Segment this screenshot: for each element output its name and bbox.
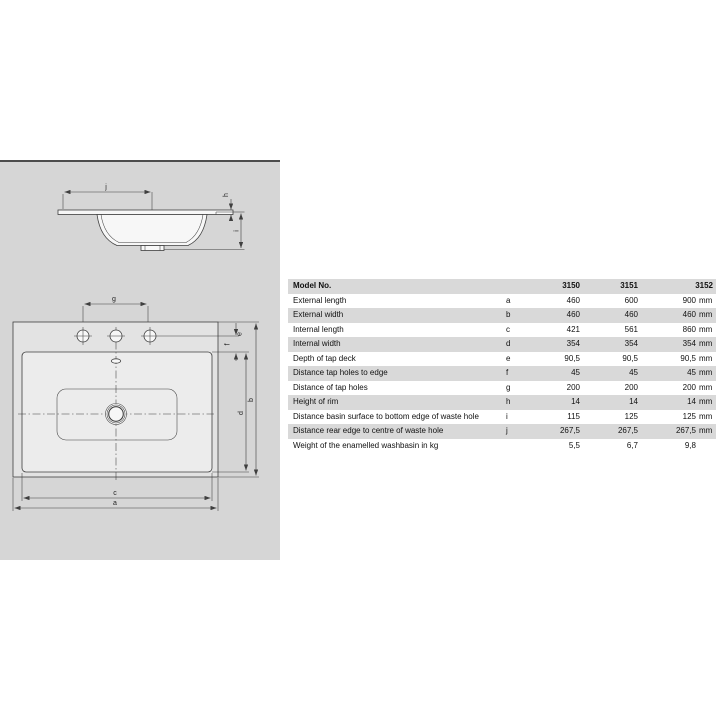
spec-value-3150: 460 <box>522 294 580 309</box>
spec-value-3151: 600 <box>580 294 638 309</box>
spec-value-3151: 14 <box>580 395 638 410</box>
dim-label-g: g <box>112 296 116 303</box>
spec-row-letter: i <box>506 410 522 425</box>
spec-row-letter: d <box>506 337 522 352</box>
dim-label-b: b <box>248 398 255 402</box>
spec-row-letter: c <box>506 323 522 338</box>
spec-row-label: External length <box>288 294 506 309</box>
spec-value-3151: 354 <box>580 337 638 352</box>
waste-fitting <box>141 246 164 251</box>
spec-row-unit: mm <box>696 337 716 352</box>
top-view-drawing: g <box>13 296 259 511</box>
spec-value-3152: 45 <box>638 366 696 381</box>
spec-value-3150: 460 <box>522 308 580 323</box>
side-view-drawing: j h <box>58 184 245 251</box>
spec-row-label: Distance rear edge to centre of waste ho… <box>288 424 506 439</box>
technical-drawing-svg: j h <box>0 162 280 560</box>
overflow-hole <box>111 359 120 363</box>
dim-label-d: d <box>238 411 245 415</box>
drawing-panel: j h <box>0 160 280 560</box>
dim-label-a: a <box>113 500 117 507</box>
spec-row-label: Internal length <box>288 323 506 338</box>
dim-label-j: j <box>104 184 107 191</box>
spec-value-3151: 45 <box>580 366 638 381</box>
spec-value-3150: 5,5 <box>522 439 580 454</box>
spec-row-unit: mm <box>696 424 716 439</box>
spec-value-3150: 267,5 <box>522 424 580 439</box>
table-row: External lengtha460600900mm <box>288 294 716 309</box>
spec-value-3151: 561 <box>580 323 638 338</box>
spec-row-letter: h <box>506 395 522 410</box>
spec-value-3150: 200 <box>522 381 580 396</box>
dim-label-i: i <box>234 230 241 232</box>
spec-row-label: Distance basin surface to bottom edge of… <box>288 410 506 425</box>
spec-value-3151: 125 <box>580 410 638 425</box>
table-row: Distance basin surface to bottom edge of… <box>288 410 716 425</box>
dim-label-e: e <box>237 332 244 336</box>
spec-row-letter: f <box>506 366 522 381</box>
spec-value-3151: 267,5 <box>580 424 638 439</box>
spec-value-3150: 115 <box>522 410 580 425</box>
spec-value-3152: 200 <box>638 381 696 396</box>
spec-table-header-row: Model No. 3150 3151 3152 <box>288 279 716 294</box>
spec-row-unit: mm <box>696 381 716 396</box>
spec-value-3150: 45 <box>522 366 580 381</box>
spec-row-letter: g <box>506 381 522 396</box>
spec-value-3151: 90,5 <box>580 352 638 367</box>
spec-row-unit: mm <box>696 323 716 338</box>
spec-value-3150: 354 <box>522 337 580 352</box>
spec-value-3152: 460 <box>638 308 696 323</box>
spec-value-3151: 200 <box>580 381 638 396</box>
model-column-header: 3152 <box>638 279 716 294</box>
table-row: Distance of tap holesg200200200mm <box>288 381 716 396</box>
bowl-outline <box>97 215 207 246</box>
table-row: Height of rimh141414mm <box>288 395 716 410</box>
spec-value-3150: 14 <box>522 395 580 410</box>
spec-table: Model No. 3150 3151 3152 External length… <box>288 279 716 453</box>
table-row: Distance rear edge to centre of waste ho… <box>288 424 716 439</box>
table-row: Weight of the enamelled washbasin in kg5… <box>288 439 716 454</box>
spec-value-3150: 421 <box>522 323 580 338</box>
table-row: Internal widthd354354354mm <box>288 337 716 352</box>
spec-value-3152: 354 <box>638 337 696 352</box>
spec-row-label: External width <box>288 308 506 323</box>
waste-hole <box>106 404 127 425</box>
spec-row-letter: e <box>506 352 522 367</box>
spec-row-label: Internal width <box>288 337 506 352</box>
spec-row-letter: j <box>506 424 522 439</box>
spec-row-unit: mm <box>696 395 716 410</box>
spec-row-label: Distance tap holes to edge <box>288 366 506 381</box>
spec-value-3152: 9,8 <box>638 439 696 454</box>
spec-row-label: Distance of tap holes <box>288 381 506 396</box>
spec-row-unit: mm <box>696 294 716 309</box>
dim-label-c: c <box>113 490 117 497</box>
dim-label-f: f <box>225 343 232 345</box>
spec-row-unit: mm <box>696 308 716 323</box>
spec-row-unit: mm <box>696 410 716 425</box>
spec-row-unit: mm <box>696 352 716 367</box>
spec-value-3151: 6,7 <box>580 439 638 454</box>
spec-value-3152: 267,5 <box>638 424 696 439</box>
spec-value-3152: 90,5 <box>638 352 696 367</box>
dim-label-h: h <box>223 193 230 197</box>
spec-value-3152: 14 <box>638 395 696 410</box>
spec-row-letter: a <box>506 294 522 309</box>
spec-row-unit: mm <box>696 366 716 381</box>
table-row: Depth of tap decke90,590,590,5mm <box>288 352 716 367</box>
table-row: Internal lengthc421561860mm <box>288 323 716 338</box>
spec-value-3152: 125 <box>638 410 696 425</box>
spec-table-body: External lengtha460600900mmExternal widt… <box>288 294 716 454</box>
model-column-header: 3151 <box>580 279 638 294</box>
model-column-header: 3150 <box>522 279 580 294</box>
spec-row-label: Depth of tap deck <box>288 352 506 367</box>
table-row: Distance tap holes to edgef454545mm <box>288 366 716 381</box>
model-no-header: Model No. <box>288 279 522 294</box>
spec-value-3150: 90,5 <box>522 352 580 367</box>
spec-sheet-page: j h <box>0 0 720 720</box>
spec-value-3151: 460 <box>580 308 638 323</box>
deck-slab <box>58 210 233 215</box>
spec-row-letter: b <box>506 308 522 323</box>
spec-value-3152: 860 <box>638 323 696 338</box>
spec-row-label: Weight of the enamelled washbasin in kg <box>288 439 506 454</box>
spec-value-3152: 900 <box>638 294 696 309</box>
table-row: External widthb460460460mm <box>288 308 716 323</box>
spec-row-label: Height of rim <box>288 395 506 410</box>
